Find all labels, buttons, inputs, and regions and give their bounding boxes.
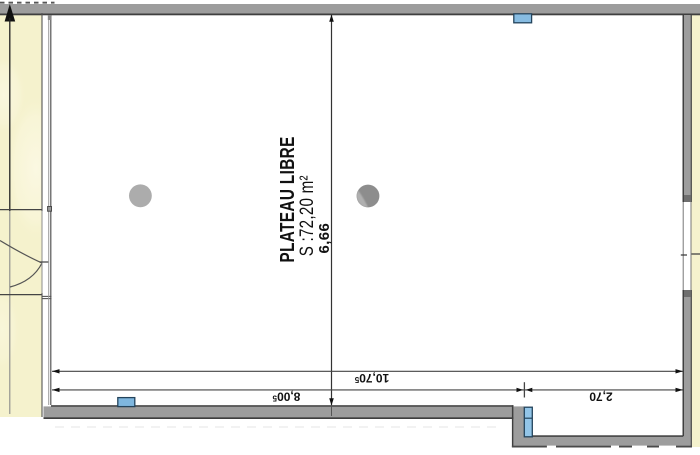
- svg-text:10,705: 10,705: [354, 371, 389, 385]
- svg-text:2,70: 2,70: [589, 390, 613, 404]
- svg-text:6,66: 6,66: [316, 223, 333, 254]
- svg-text:S :72,20 m²: S :72,20 m²: [295, 175, 317, 256]
